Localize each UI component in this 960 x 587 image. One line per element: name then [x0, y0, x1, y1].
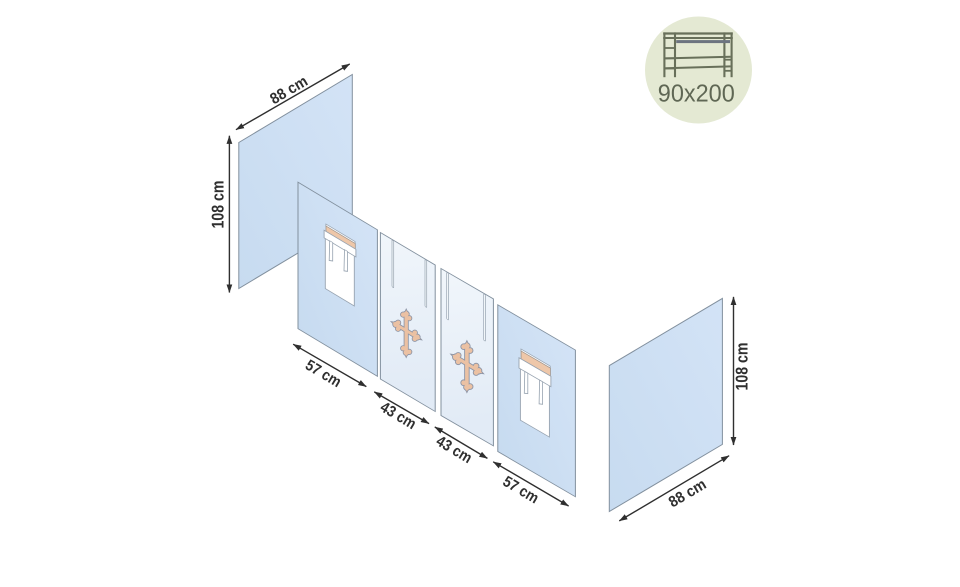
svg-text:90x200: 90x200 — [658, 81, 735, 108]
svg-text:108 cm: 108 cm — [208, 181, 227, 229]
svg-text:108 cm: 108 cm — [732, 343, 751, 391]
